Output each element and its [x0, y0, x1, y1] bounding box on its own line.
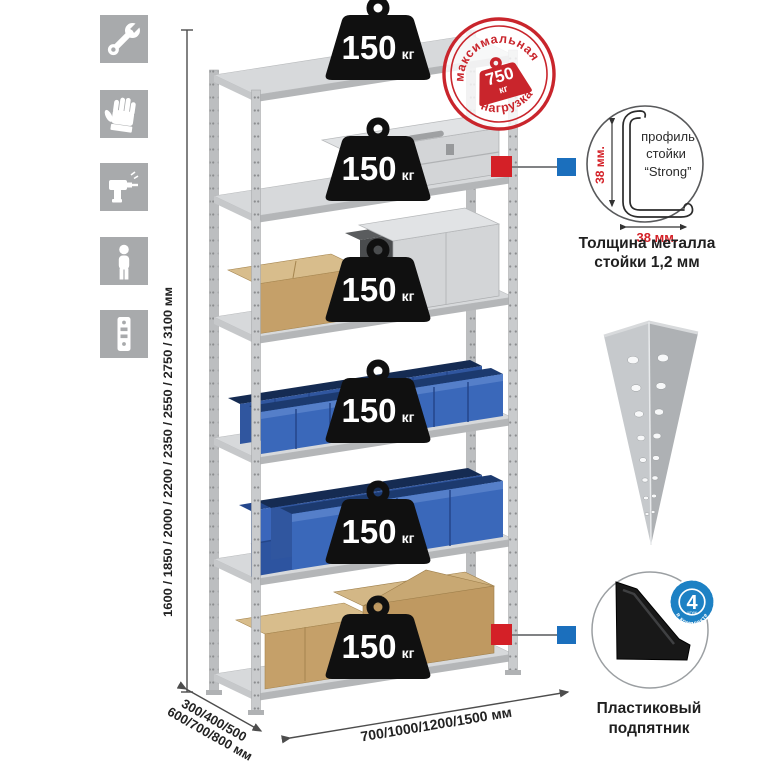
connector-red-marker — [491, 156, 512, 177]
infographic-svg: 1600 / 1850 / 2000 / 2200 / 2350 / 2550 … — [0, 0, 765, 765]
load-badge-value: 150 — [341, 513, 396, 550]
profile-caption-line2: стойки 1,2 мм — [594, 254, 699, 271]
height-dimension-label: 1600 / 1850 / 2000 / 2200 / 2350 / 2550 … — [161, 287, 175, 617]
person-icon — [100, 237, 148, 285]
connector-blue-marker — [557, 158, 576, 176]
load-badge-1: 150 кг — [326, 0, 431, 80]
load-badge-value: 150 — [341, 628, 396, 665]
profile-caption-line1: Толщина металла — [579, 235, 716, 252]
wrench-icon — [100, 15, 148, 63]
load-badge-unit: кг — [402, 409, 415, 425]
connector-blue-marker — [557, 626, 576, 644]
foot-caption-line2: подпятник — [608, 720, 689, 737]
depth-dimension: 300/400/500 600/700/800 мм — [165, 689, 262, 764]
left-toolbar — [100, 15, 148, 358]
width-dimension: 700/1000/1200/1500 мм — [290, 692, 568, 744]
back-left-post — [206, 70, 222, 695]
foot-caption: Пластиковый подпятник — [597, 700, 702, 737]
load-badge-unit: кг — [402, 530, 415, 546]
front-right-post — [505, 50, 521, 675]
load-badge-unit: кг — [402, 167, 415, 183]
kit-badge-sub: штуки — [687, 611, 696, 615]
gloves-icon — [100, 90, 148, 138]
load-badge-unit: кг — [402, 288, 415, 304]
load-badge-unit: кг — [402, 46, 415, 62]
connector-top — [491, 156, 576, 177]
drill-icon — [100, 163, 148, 211]
height-dimension: 1600 / 1850 / 2000 / 2200 / 2350 / 2550 … — [161, 30, 193, 692]
profile-caption: Толщина металла стойки 1,2 мм — [579, 235, 716, 271]
connector-bottom — [491, 624, 576, 645]
upright-post-icon — [100, 310, 148, 358]
profile-label-3: “Strong” — [645, 164, 692, 179]
load-badge-value: 150 — [341, 271, 396, 308]
width-dimension-label: 700/1000/1200/1500 мм — [359, 704, 513, 745]
profile-detail-circle: 38 мм. 38 мм. профиль стойки “Strong” — [587, 106, 703, 245]
product-infographic: 1600 / 1850 / 2000 / 2200 / 2350 / 2550 … — [0, 0, 765, 765]
connector-red-marker — [491, 624, 512, 645]
profile-label-1: профиль — [641, 129, 695, 144]
load-badge-value: 150 — [341, 392, 396, 429]
load-badge-value: 150 — [341, 29, 396, 66]
load-badge-value: 150 — [341, 150, 396, 187]
shelving-unit — [206, 30, 521, 715]
profile-dim-vertical: 38 мм. — [593, 146, 607, 184]
profile-label-2: стойки — [646, 146, 686, 161]
foot-caption-line1: Пластиковый — [597, 700, 702, 717]
corner-post-image — [604, 322, 698, 545]
load-badge-unit: кг — [402, 645, 415, 661]
